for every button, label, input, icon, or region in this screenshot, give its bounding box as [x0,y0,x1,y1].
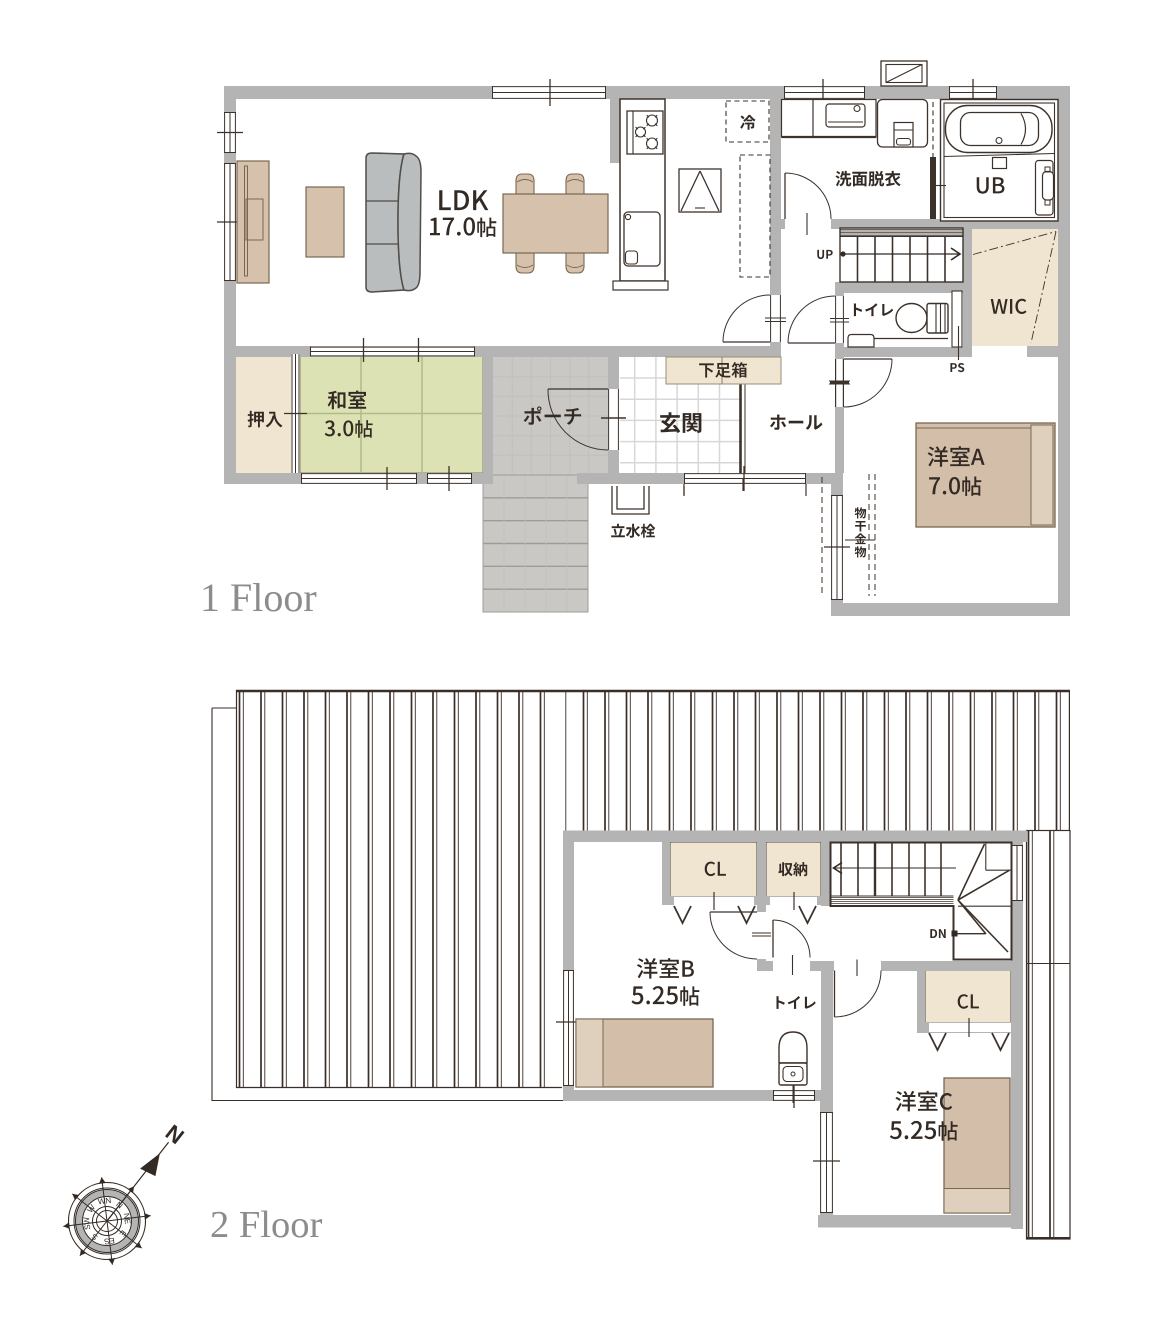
svg-text:WN: WN [97,1196,112,1207]
svg-text:ES: ES [104,1236,116,1246]
svg-text:2 Floor: 2 Floor [210,1204,322,1246]
svg-text:NE: NE [122,1213,132,1225]
svg-text:1 Floor: 1 Floor [200,575,317,620]
svg-text:SW: SW [82,1216,93,1230]
